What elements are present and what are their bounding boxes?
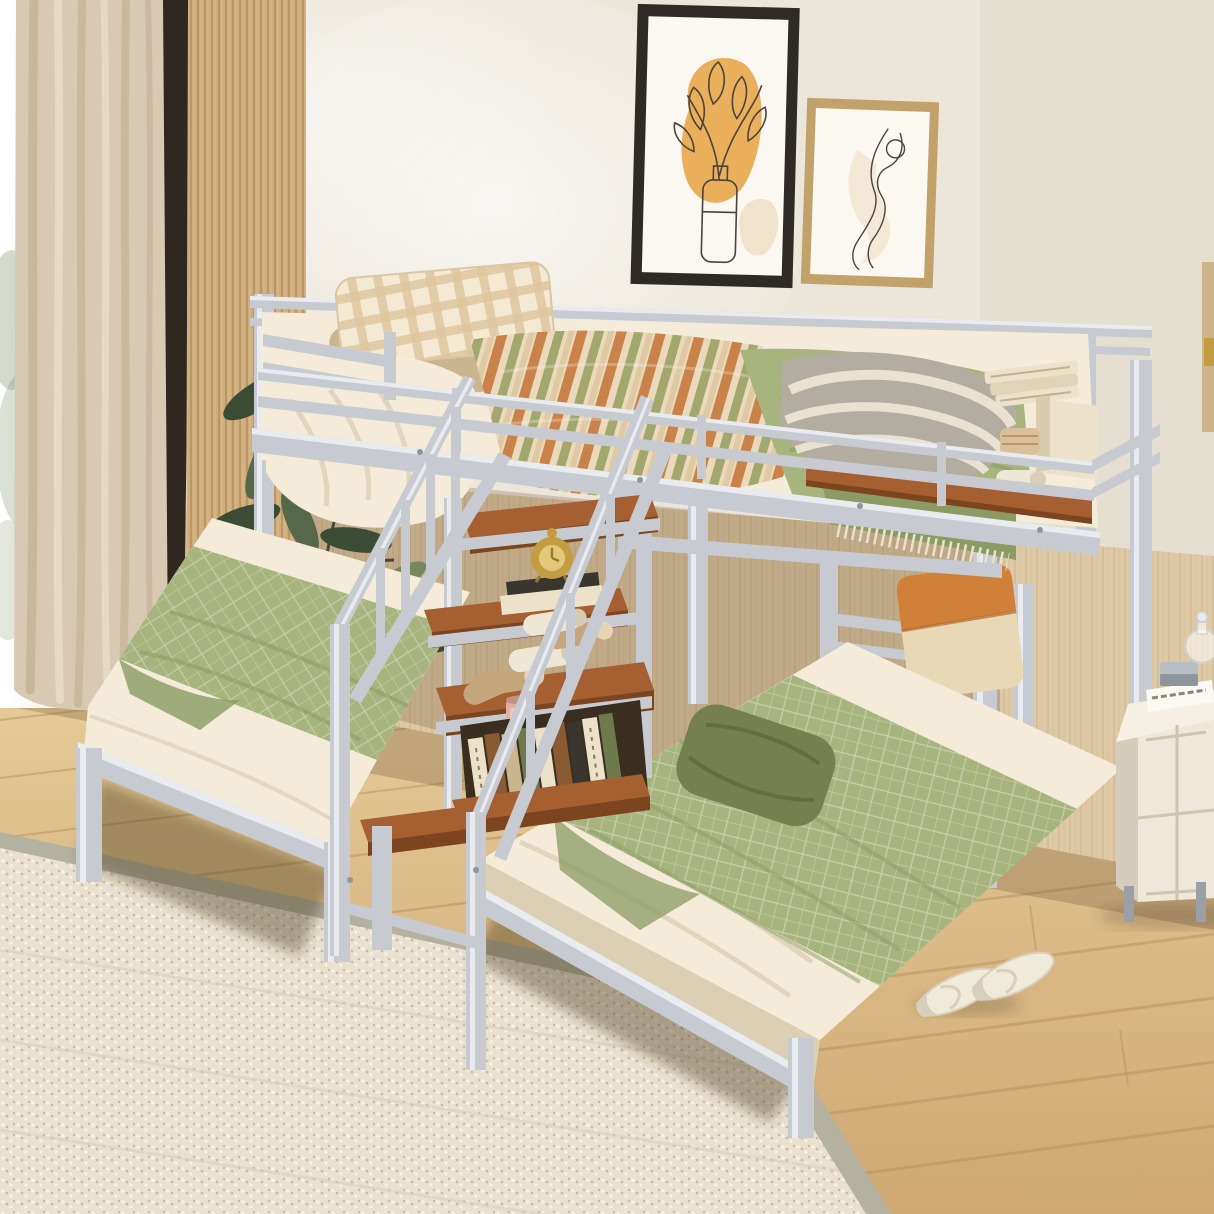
bedroom-photo <box>0 0 1214 1214</box>
nightstand-leg <box>1124 886 1134 922</box>
left-bed-leg-front <box>76 748 102 882</box>
black-framed-print <box>630 4 799 288</box>
scene-canvas <box>0 0 1214 1214</box>
nightstand-leg-2 <box>1196 882 1206 922</box>
right-bed-leg-front <box>788 1038 814 1138</box>
nightstand-side <box>1116 730 1138 902</box>
door-hardware <box>1204 338 1214 366</box>
wood-framed-print <box>801 98 939 288</box>
stair-leg-mid <box>372 826 392 950</box>
woven-basket <box>1000 428 1040 455</box>
